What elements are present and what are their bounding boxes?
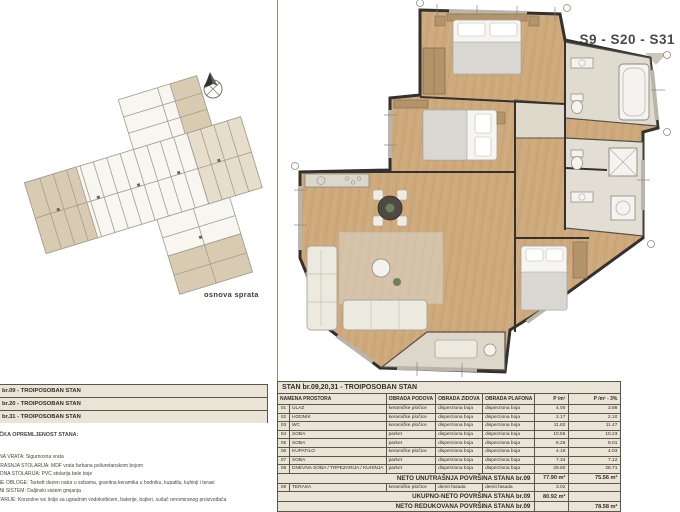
cell-no: 06 — [278, 447, 290, 456]
cell-floor: parket — [386, 430, 435, 439]
plant-icon-2 — [393, 278, 401, 286]
bedroom2-bed — [423, 110, 505, 160]
col-header-ceiling: OBRADA PLAFONA — [483, 394, 535, 405]
cell-area-reduced: 2.10 — [569, 413, 621, 422]
area-spec-table: STAN br.09,20,31 - TROIPOSOBAN STAN NAME… — [277, 381, 621, 512]
cell-name: SOBA — [290, 439, 387, 448]
cell-no: 07 — [278, 456, 290, 465]
cell-walls: disperziona boja — [436, 430, 483, 439]
cell-ceiling: disperziona boja — [483, 405, 535, 414]
col-header-walls: OBRADA ZIDOVA — [436, 394, 483, 405]
col-header-name: NAMENA PROSTORA — [278, 394, 387, 405]
summary-ukupno-neto: UKUPNO-NETO POVRŠINA STANA br.09 80.92 m… — [278, 492, 621, 502]
cell-area: 4.16 — [535, 447, 569, 456]
site-plan-caption: osnova sprata — [204, 290, 259, 299]
cell-floor: keramičke pločice — [386, 405, 435, 414]
cell-area-reduced: 8.01 — [569, 439, 621, 448]
cell-floor: keramičke pločice — [386, 413, 435, 422]
cell-name: TERASA — [290, 483, 387, 492]
table-row: 03 WC keramičke pločice disperziona boja… — [278, 422, 621, 431]
tech-specs: HNIČKA OPREMLJENOST STANA: LAZNA VRATA: … — [0, 432, 280, 506]
cell-no: 08 — [278, 465, 290, 474]
summary-area-reduced: 78.58 m² — [569, 502, 621, 512]
cell-name: DNEVNA SOBA / TRPEZARIJA / KUHINJA — [290, 465, 387, 474]
cell-area-reduced: 28.71 — [569, 465, 621, 474]
cell-floor: parket — [386, 439, 435, 448]
apartment-list-item: AN br.31 - TROIPOSOBAN STAN — [0, 410, 268, 423]
cell-name: SOBA — [290, 456, 387, 465]
summary-neto-unutrasnja: NETO UNUTRAŠNJA POVRŠINA STANA br.09 77.… — [278, 473, 621, 483]
cell-area-reduced: 3.88 — [569, 405, 621, 414]
cell-ceiling: disperziona boja — [483, 456, 535, 465]
cell-floor: parket — [386, 465, 435, 474]
cell-no: 05 — [278, 439, 290, 448]
cell-walls: disperziona boja — [436, 422, 483, 431]
tech-specs-line: ASADNA STOLARIJA: PVC stolarija bele boj… — [0, 471, 280, 477]
summary-area: 80.92 m² — [535, 492, 569, 502]
cell-name: ULAZ — [290, 405, 387, 414]
table-row: 01 ULAZ keramičke pločice disperziona bo… — [278, 405, 621, 414]
cell-no: 03 — [278, 422, 290, 431]
summary-neto-redukovana: NETO REDUKOVANA POVRŠINA STANA br.09 78.… — [278, 502, 621, 512]
toilet-2 — [571, 150, 583, 170]
summary-area — [535, 502, 569, 512]
table-title: STAN br.09,20,31 - TROIPOSOBAN STAN — [278, 382, 621, 394]
bedroom2-dresser — [394, 100, 428, 108]
cell-area: 10.55 — [535, 430, 569, 439]
cell-name: HODNIK — [290, 413, 387, 422]
table-row: 08 DNEVNA SOBA / TRPEZARIJA / KUHINJA pa… — [278, 465, 621, 474]
apartment-list-item: AN br.20 - TROIPOSOBAN STAN — [0, 397, 268, 410]
sofa-bottom — [343, 300, 427, 330]
cell-area-reduced: 11.47 — [569, 422, 621, 431]
table-row: 05 SOBA parket disperziona boja disperzi… — [278, 439, 621, 448]
cell-area-reduced: 7.12 — [569, 456, 621, 465]
cell-ceiling: disperziona boja — [483, 430, 535, 439]
col-header-floor: OBRADA PODOVA — [386, 394, 435, 405]
rug — [339, 232, 443, 304]
cell-area-reduced: 4.03 — [569, 447, 621, 456]
tech-specs-line: ANITARIJE: Konzolne wc šolje sa ugradnim… — [0, 497, 280, 503]
sink-1 — [571, 58, 593, 68]
cell-no: 02 — [278, 413, 290, 422]
cell-area: 11.82 — [535, 422, 569, 431]
apartment-list-item: AN br.09 - TROIPOSOBAN STAN — [0, 384, 268, 397]
cell-no: 04 — [278, 430, 290, 439]
cell-ceiling: disperziona boja — [483, 422, 535, 431]
cell-ceiling: disperziona boja — [483, 439, 535, 448]
cell-walls: disperziona boja — [436, 413, 483, 422]
cell-walls: disperziona boja — [436, 456, 483, 465]
cell-area-reduced: 10.23 — [569, 430, 621, 439]
table-row-terasa: 09 TERASA keramičke pločice demit fasada… — [278, 483, 621, 492]
col-header-area: P /m² — [535, 394, 569, 405]
summary-area-reduced — [569, 492, 621, 502]
cell-walls: disperziona boja — [436, 405, 483, 414]
tech-specs-heading: HNIČKA OPREMLJENOST STANA: — [0, 432, 280, 438]
plant-icon — [386, 204, 395, 213]
cell-walls: demit fasada — [436, 483, 483, 492]
cell-area: 2.17 — [535, 413, 569, 422]
entry-floor — [515, 100, 565, 138]
cell-area: 7.34 — [535, 456, 569, 465]
cell-area-reduced — [569, 483, 621, 492]
cell-floor: keramičke pločice — [386, 422, 435, 431]
cell-area: 3.02 — [535, 483, 569, 492]
site-plan-drawing — [0, 0, 277, 380]
bedroom3-wardrobe — [573, 242, 587, 278]
bedroom3-bed — [521, 246, 567, 310]
cell-floor: keramičke pločice — [386, 483, 435, 492]
cell-name: SOBA — [290, 430, 387, 439]
tech-specs-line: ODNE OBLOGE: Tarkett dezen natur u sobam… — [0, 480, 280, 486]
table-row: 07 SOBA parket disperziona boja disperzi… — [278, 456, 621, 465]
summary-label: UKUPNO-NETO POVRŠINA STANA br.09 — [278, 492, 535, 502]
cell-ceiling: disperziona boja — [483, 465, 535, 474]
cell-no: 09 — [278, 483, 290, 492]
table-header-row: NAMENA PROSTORA OBRADA PODOVA OBRADA ZID… — [278, 394, 621, 405]
apartment-list: AN br.09 - TROIPOSOBAN STAN AN br.20 - T… — [0, 384, 268, 423]
cell-floor: parket — [386, 456, 435, 465]
cell-no: 01 — [278, 405, 290, 414]
summary-label: NETO UNUTRAŠNJA POVRŠINA STANA br.09 — [278, 473, 535, 483]
tech-specs-line: NUTRAŠNJA STOLARIJA: MDF vrata farbana p… — [0, 463, 280, 469]
bedroom1-wardrobe — [423, 48, 445, 94]
tech-specs-line: REJNI SISTEM: Daljinski sistem grejanja — [0, 488, 280, 494]
cell-walls: disperziona boja — [436, 465, 483, 474]
toilet-1 — [571, 94, 583, 114]
sofa-left — [307, 246, 337, 330]
sink-2 — [571, 192, 593, 202]
cell-area: 29.60 — [535, 465, 569, 474]
cell-ceiling: demit fasada — [483, 483, 535, 492]
summary-area: 77.90 m² — [535, 473, 569, 483]
bathtub — [619, 64, 649, 120]
summary-area-reduced: 75.56 m² — [569, 473, 621, 483]
cell-name: KUPATILO — [290, 447, 387, 456]
cell-ceiling: disperziona boja — [483, 447, 535, 456]
table-row: 06 KUPATILO keramičke pločice disperzion… — [278, 447, 621, 456]
shower — [609, 148, 637, 176]
kitchen-counter — [305, 174, 369, 187]
cell-floor: keramičke pločice — [386, 447, 435, 456]
summary-label: NETO REDUKOVANA POVRŠINA STANA br.09 — [278, 502, 535, 512]
building-outline — [9, 67, 277, 328]
washing-machine — [611, 196, 635, 220]
apartment-plan-drawing — [277, 0, 680, 380]
table-row: 04 SOBA parket disperziona boja disperzi… — [278, 430, 621, 439]
cell-area: 4.00 — [535, 405, 569, 414]
cell-name: WC — [290, 422, 387, 431]
compass-icon — [204, 72, 222, 98]
cell-area: 8.26 — [535, 439, 569, 448]
col-header-area-reduced: P /m² - 3% — [569, 394, 621, 405]
table-row: 02 HODNIK keramičke pločice disperziona … — [278, 413, 621, 422]
cell-walls: disperziona boja — [436, 447, 483, 456]
cell-ceiling: disperziona boja — [483, 413, 535, 422]
tech-specs-line: LAZNA VRATA: Sigurnosna vrata — [0, 454, 280, 460]
cell-walls: disperziona boja — [436, 439, 483, 448]
